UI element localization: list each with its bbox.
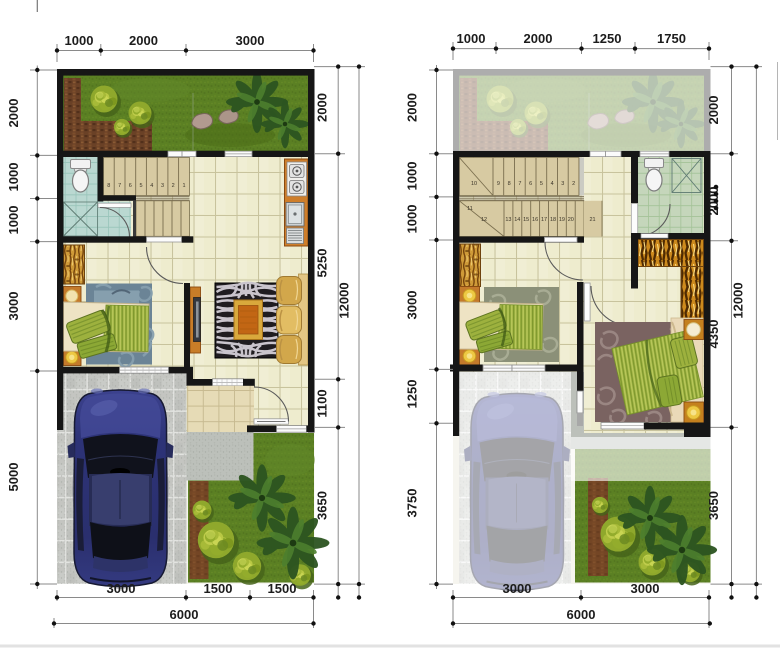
svg-text:6: 6	[129, 183, 132, 189]
svg-text:9: 9	[497, 181, 500, 187]
svg-text:19: 19	[559, 217, 565, 223]
svg-text:1000: 1000	[6, 206, 21, 235]
svg-text:1250: 1250	[593, 31, 622, 46]
svg-text:12: 12	[481, 217, 487, 223]
svg-text:3000: 3000	[236, 33, 265, 48]
svg-text:2000: 2000	[129, 33, 158, 48]
svg-text:5: 5	[139, 183, 142, 189]
svg-text:6: 6	[529, 181, 532, 187]
svg-text:3650: 3650	[315, 491, 330, 520]
svg-text:21: 21	[589, 217, 595, 223]
svg-text:3000: 3000	[631, 581, 660, 596]
svg-text:2000: 2000	[6, 99, 21, 128]
svg-text:1000: 1000	[405, 162, 420, 191]
svg-text:4: 4	[551, 181, 554, 187]
svg-text:2000: 2000	[405, 93, 420, 122]
svg-text:1: 1	[182, 183, 185, 189]
svg-text:4350: 4350	[706, 320, 721, 349]
svg-text:18: 18	[550, 217, 556, 223]
svg-text:6000: 6000	[170, 607, 199, 622]
svg-text:5000: 5000	[6, 463, 21, 492]
svg-text:6000: 6000	[567, 607, 596, 622]
svg-text:10: 10	[471, 181, 477, 187]
svg-text:12000: 12000	[731, 282, 746, 318]
svg-text:3650: 3650	[706, 491, 721, 520]
svg-text:4: 4	[150, 183, 153, 189]
svg-text:3000: 3000	[6, 292, 21, 321]
svg-text:2000: 2000	[315, 93, 330, 122]
svg-text:1500: 1500	[204, 581, 233, 596]
svg-text:15: 15	[523, 217, 529, 223]
svg-text:3000: 3000	[107, 581, 136, 596]
svg-text:12000: 12000	[337, 282, 352, 318]
svg-text:2000: 2000	[706, 96, 721, 125]
svg-text:2: 2	[172, 183, 175, 189]
svg-text:1000: 1000	[65, 33, 94, 48]
svg-text:8: 8	[107, 183, 110, 189]
svg-text:1250: 1250	[405, 380, 420, 409]
svg-text:14: 14	[514, 217, 520, 223]
svg-text:1000: 1000	[405, 205, 420, 234]
svg-text:2000: 2000	[706, 187, 721, 216]
svg-text:3000: 3000	[405, 291, 420, 320]
svg-text:17: 17	[541, 217, 547, 223]
svg-text:7: 7	[118, 183, 121, 189]
svg-text:3: 3	[561, 181, 564, 187]
svg-text:1000: 1000	[6, 163, 21, 192]
svg-text:16: 16	[532, 217, 538, 223]
svg-text:1750: 1750	[657, 31, 686, 46]
svg-text:1100: 1100	[315, 389, 330, 417]
svg-text:3: 3	[161, 183, 164, 189]
svg-text:5250: 5250	[315, 249, 330, 278]
svg-text:7: 7	[518, 181, 521, 187]
svg-text:13: 13	[505, 217, 511, 223]
svg-text:1500: 1500	[268, 581, 297, 596]
svg-text:2: 2	[572, 181, 575, 187]
svg-text:2000: 2000	[524, 31, 553, 46]
svg-text:11: 11	[467, 206, 473, 212]
svg-text:8: 8	[508, 181, 511, 187]
svg-text:3750: 3750	[405, 489, 420, 518]
svg-text:5: 5	[540, 181, 543, 187]
svg-text:3000: 3000	[503, 581, 532, 596]
svg-text:20: 20	[568, 217, 574, 223]
svg-text:1000: 1000	[457, 31, 486, 46]
